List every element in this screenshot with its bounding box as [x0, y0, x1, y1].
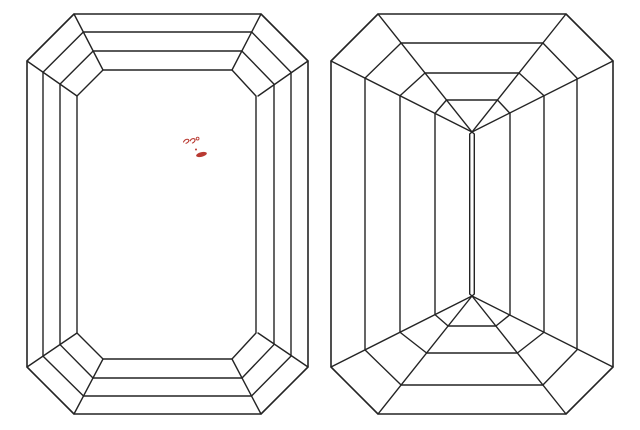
pavilion-corner-junction-line	[331, 296, 472, 367]
diamond-wireframe-canvas	[0, 0, 640, 430]
wireframe-svg	[0, 0, 640, 430]
pavilion-keel-line	[472, 132, 474, 296]
pavilion-corner-junction-line	[472, 61, 613, 132]
crown-corner-junction-line	[232, 359, 261, 414]
crown-step-outline	[43, 32, 291, 396]
red-annotation-stroke	[184, 139, 189, 143]
pavilion-corner-junction-line	[472, 296, 613, 367]
crown-corner-junction-line	[232, 14, 261, 70]
pavilion-corner-junction-line	[378, 296, 472, 414]
crown-corner-junction-line	[258, 333, 308, 367]
pavilion-girdle-outline	[331, 14, 613, 414]
pavilion-step-outline	[435, 100, 510, 326]
crown-corner-junction-line	[27, 333, 77, 367]
red-annotation-stroke	[190, 139, 195, 143]
crown-corner-junction-line	[27, 61, 77, 96]
crown-view-group	[27, 14, 308, 414]
pavilion-corner-junction-line	[472, 296, 566, 414]
red-annotation-ellipse	[196, 151, 208, 158]
pavilion-view-group	[331, 14, 613, 414]
pavilion-keel-line	[470, 132, 472, 296]
pavilion-corner-junction-line	[331, 61, 472, 132]
red-annotation-dot	[195, 149, 197, 151]
red-annotation	[184, 137, 208, 158]
crown-corner-junction-line	[258, 61, 308, 96]
crown-corner-junction-line	[74, 14, 103, 70]
crown-corner-junction-line	[74, 359, 103, 414]
crown-step-outline	[60, 51, 274, 378]
red-annotation-degree-circle	[196, 137, 199, 140]
pavilion-step-outline	[400, 73, 544, 353]
crown-table-outline	[77, 70, 256, 359]
